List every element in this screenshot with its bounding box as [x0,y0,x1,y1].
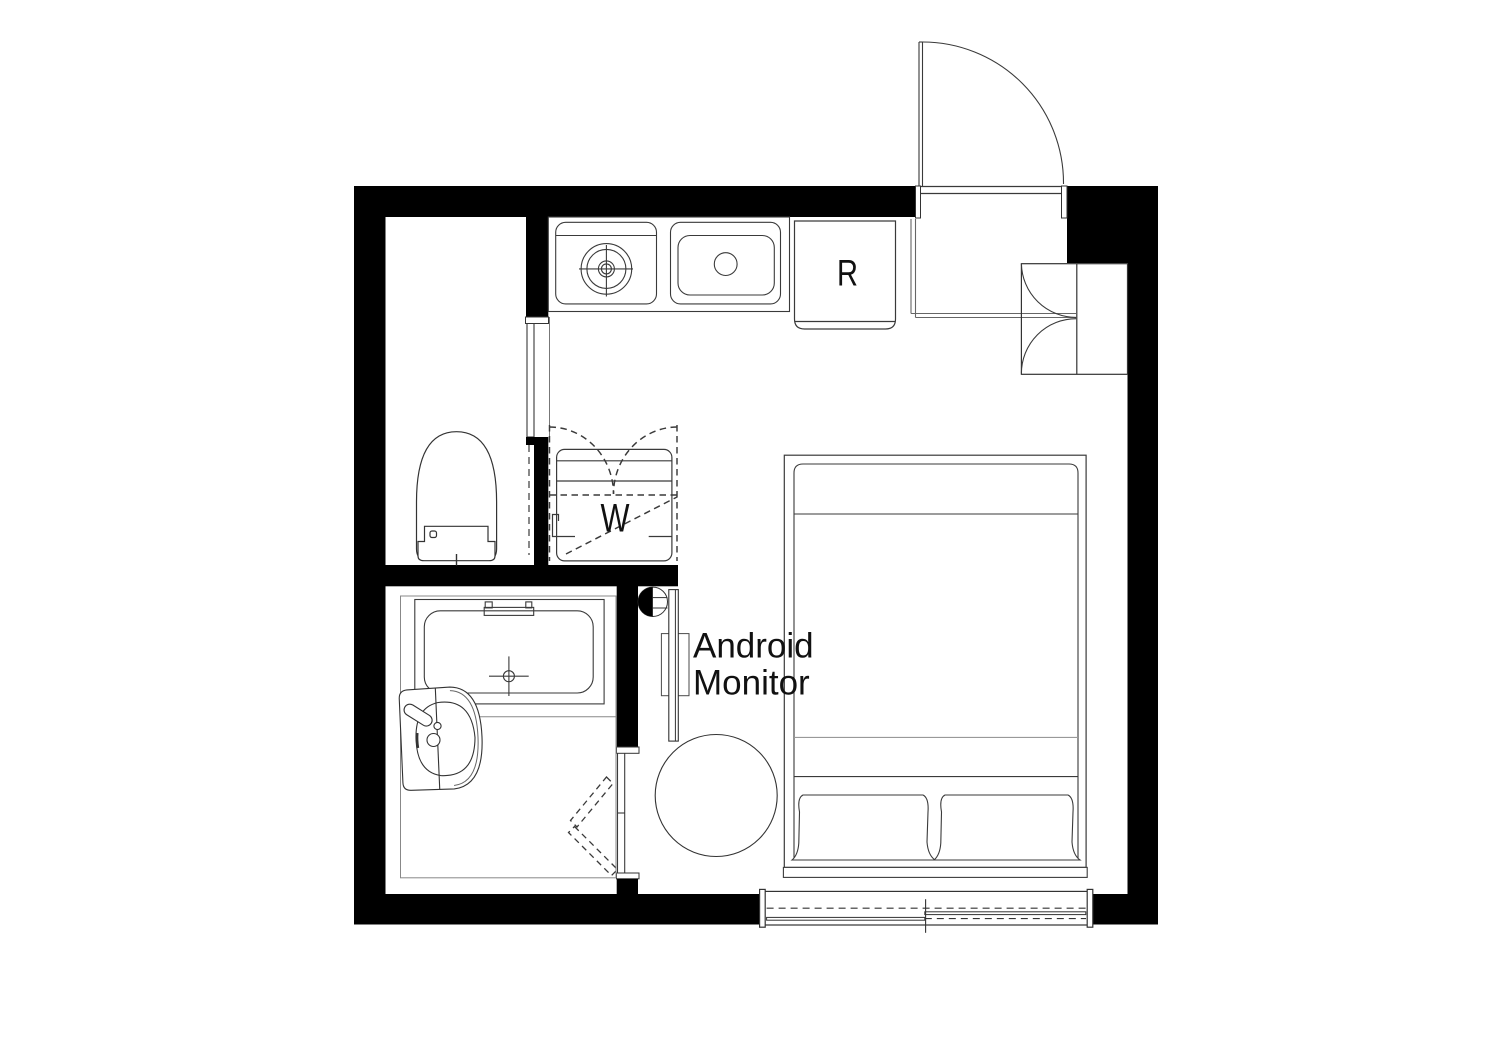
svg-text:R: R [837,253,858,294]
svg-text:W: W [601,497,630,541]
svg-text:Android: Android [693,627,814,666]
svg-text:Monitor: Monitor [693,664,810,703]
